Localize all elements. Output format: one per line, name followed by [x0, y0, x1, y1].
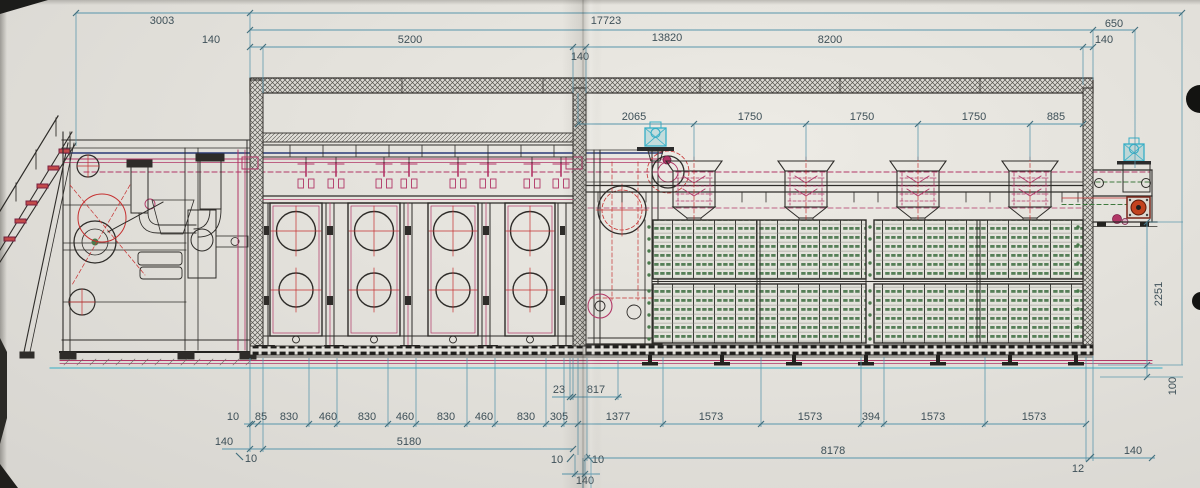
dim-5180: 5180	[397, 436, 421, 448]
dim-5200: 5200	[398, 34, 422, 46]
dim-1573-b: 1573	[798, 411, 822, 423]
dim-140-right: 140	[1124, 445, 1142, 457]
dim-140-c: 140	[1095, 34, 1113, 46]
top-edge-shadow	[0, 0, 1200, 5]
dim-140-base: 140	[215, 436, 233, 448]
dim-885: 885	[1047, 111, 1065, 123]
dim-650: 650	[1105, 18, 1123, 30]
dim-830-b: 830	[358, 411, 376, 423]
dim-10-gap-b: 10	[551, 454, 563, 466]
dim-830-c: 830	[437, 411, 455, 423]
dim-1377: 1377	[606, 411, 630, 423]
dim-13820: 13820	[652, 32, 683, 44]
dim-8178: 8178	[821, 445, 845, 457]
dim-8200: 8200	[818, 34, 842, 46]
dim-3003: 3003	[150, 15, 174, 27]
corner-dark-bottom-left	[0, 464, 18, 488]
edge-blob-right-lower	[1192, 292, 1200, 310]
dim-1750-c: 1750	[962, 111, 986, 123]
dim-394: 394	[862, 411, 880, 423]
oven1-posts	[263, 203, 566, 345]
drying-decks	[645, 220, 1083, 343]
oven1-valves	[298, 157, 569, 188]
dim-1750-b: 1750	[850, 111, 874, 123]
dim-1573-d: 1573	[1022, 411, 1046, 423]
discharge-gearbox	[1127, 197, 1150, 218]
dim-10: 10	[227, 411, 239, 423]
discharge-motor	[1124, 138, 1144, 161]
dim-830-a: 830	[280, 411, 298, 423]
dim-460-b: 460	[396, 411, 414, 423]
dim-460-a: 460	[319, 411, 337, 423]
dim-1573-a: 1573	[699, 411, 723, 423]
feeder-pulleys	[69, 155, 163, 315]
dim-2065: 2065	[622, 111, 646, 123]
oven1-drying-chamber	[250, 133, 586, 355]
dim-85: 85	[255, 411, 267, 423]
drawing-svg: 3003 17723 13820 650 140 5200 140 8200 1…	[0, 0, 1200, 488]
photographed-technical-drawing: 3003 17723 13820 650 140 5200 140 8200 1…	[0, 0, 1200, 488]
chain-conveyor	[586, 345, 1093, 366]
dim-10-gap-a: 10	[245, 453, 257, 465]
dim-2251: 2251	[1153, 282, 1165, 306]
access-stairs	[0, 116, 76, 358]
fan-circles	[277, 212, 550, 308]
dim-1750-a: 1750	[738, 111, 762, 123]
paper-fold-shadow	[562, 0, 602, 488]
dim-140-a: 140	[202, 34, 220, 46]
dim-1573-c: 1573	[921, 411, 945, 423]
dim-460-c: 460	[475, 411, 493, 423]
feeder-frame	[60, 132, 258, 365]
dim-830-d: 830	[517, 411, 535, 423]
transfer-drive-motor	[645, 122, 666, 146]
dim-12: 12	[1072, 463, 1084, 475]
dim-100: 100	[1167, 377, 1179, 395]
corner-dark-top-left	[0, 0, 48, 14]
edge-blob-right-upper	[1186, 85, 1200, 113]
